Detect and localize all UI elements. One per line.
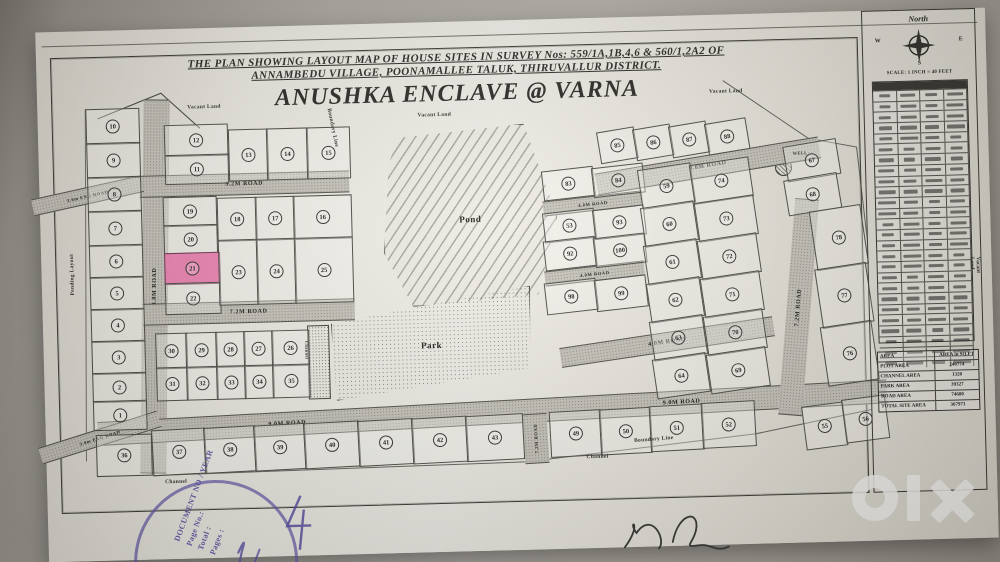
plot-number: 12: [189, 133, 203, 147]
schedule-cell: [947, 207, 971, 217]
schedule-cell: [921, 111, 945, 121]
plot-number: 9: [106, 153, 120, 167]
plot-cell: 39: [253, 423, 307, 472]
plot-number: 33: [224, 375, 238, 389]
schedule-cell: [901, 272, 925, 282]
plot-number: 22: [186, 291, 200, 305]
plot-number: 32: [195, 376, 209, 390]
plot-number: 98: [564, 289, 579, 304]
map-label: WELL: [793, 150, 808, 155]
schedule-cell: [926, 335, 950, 345]
schedule-cell: [877, 230, 901, 240]
schedule-cell: [874, 123, 898, 133]
plot-cell: 2: [92, 372, 147, 403]
schedule-cell: [922, 165, 946, 175]
schedule-cell: [875, 166, 899, 176]
schedule-cell: [900, 240, 924, 250]
plot-number: 49: [569, 426, 584, 441]
summary-label: PARK AREA: [879, 381, 936, 391]
schedule-cell: [878, 294, 902, 304]
plot-cell: 49: [549, 409, 603, 458]
plot-cell: 83: [541, 166, 596, 202]
schedule-cell: [877, 251, 901, 261]
olx-l-icon: [907, 475, 920, 521]
plot-cell: 7: [88, 210, 143, 247]
schedule-cell: [924, 250, 948, 260]
plot-cell: 78: [809, 204, 869, 271]
plot-number: 16: [315, 210, 329, 224]
schedule-cell: [897, 101, 921, 111]
plot-cell: 32: [186, 366, 219, 401]
schedule-cell: [898, 133, 922, 143]
plot-number: 69: [730, 362, 746, 378]
schedule-cell: [879, 326, 903, 336]
plot-cell: 11: [164, 154, 229, 186]
schedule-cell: [897, 122, 921, 132]
plot-number: 64: [673, 368, 689, 384]
plot-number: 2: [112, 380, 126, 394]
plot-number: 51: [669, 420, 684, 435]
plot-number: 100: [612, 243, 627, 258]
map-label: Channel: [304, 341, 309, 359]
plot-number: 31: [165, 377, 179, 391]
plot-number: 24: [269, 264, 283, 278]
vacant-land-right-label: Vacant Land: [969, 257, 981, 274]
plot-cell: 51: [649, 403, 705, 452]
plot-number: 93: [612, 215, 627, 230]
plot-cell: 10: [85, 108, 140, 145]
schedule-cell: [875, 155, 899, 165]
road-label: 7.2M ROAD: [794, 288, 803, 326]
summary-label: ROAD AREA: [879, 391, 936, 401]
plot-cell: 42: [411, 416, 469, 465]
map-label: Vacant Land: [709, 88, 743, 95]
plot-number: 86: [645, 134, 661, 150]
plot-cell: 40: [303, 420, 361, 469]
plot-number: 41: [379, 435, 394, 450]
legend-column: North W E S SCALE: 1 INCH = 40 FEET AREA…: [861, 8, 988, 493]
summary-value: 248774: [935, 360, 978, 370]
plot-cell: 77: [814, 262, 874, 329]
road-label: 4.0M ROAD: [578, 199, 608, 207]
plot-cell: 19: [163, 196, 218, 227]
schedule-cell: [902, 293, 926, 303]
plot-cell: 17: [255, 196, 296, 241]
plot-cell: 98: [544, 278, 599, 316]
plot-number: 5: [110, 286, 124, 300]
summary-label: CHANNEL AREA: [878, 371, 935, 381]
plot-cell: 1: [93, 400, 148, 431]
plot-cell: 30: [155, 333, 188, 370]
plot-cell: 41: [357, 418, 415, 467]
schedule-cell: [944, 111, 968, 121]
schedule-cell: [924, 239, 948, 249]
plot-number: 77: [836, 287, 852, 303]
plot-cell: 100: [593, 232, 648, 268]
park-label: Park: [421, 340, 442, 351]
plot-cell: 88: [704, 117, 751, 155]
schedule-cell: [950, 335, 974, 345]
document-stamp: DOCUMENT NO / YEAR Page No.: Total : Pag…: [132, 476, 365, 562]
schedule-cell: [873, 102, 897, 112]
schedule-cell: [925, 261, 949, 271]
plot-cell: 25: [294, 236, 355, 304]
plot-cell: 23: [218, 239, 260, 306]
plot-number: 60: [661, 216, 677, 232]
schedule-cell: [949, 303, 973, 313]
compass-west-label: W: [875, 38, 881, 44]
schedule-cell: [945, 164, 969, 174]
schedule-cell: [902, 315, 926, 325]
plot-number: 7: [108, 221, 122, 235]
plot-number: 29: [194, 343, 208, 357]
plot-cell: 4: [90, 308, 145, 343]
plot-schedule-table: [872, 79, 975, 343]
summary-label: AREA: [878, 351, 935, 361]
plot-cell: 64: [652, 352, 711, 400]
plot-number: 13: [241, 148, 255, 162]
schedule-cell: [921, 143, 945, 153]
plot-number: 68: [805, 186, 821, 202]
schedule-cell: [874, 134, 898, 144]
schedule-cell: [903, 325, 927, 335]
schedule-cell: [921, 122, 945, 132]
schedule-cell: [946, 196, 970, 206]
plot-cell: 18: [217, 197, 258, 242]
schedule-cell: [873, 91, 897, 101]
schedule-cell: [920, 90, 944, 100]
plot-number: 61: [664, 254, 680, 270]
schedule-cell: [920, 100, 944, 110]
schedule-cell: [901, 261, 925, 271]
plot-number: 30: [164, 344, 178, 358]
plot-cell: 13: [228, 128, 269, 181]
schedule-cell: [924, 229, 948, 239]
plot-number: 53: [562, 218, 577, 233]
schedule-cell: [897, 90, 921, 100]
plot-number: 59: [659, 178, 675, 194]
schedule-cell: [874, 112, 898, 122]
plot-number: 70: [727, 324, 743, 340]
map-label: Vacant Land: [417, 112, 451, 119]
schedule-cell: [950, 324, 974, 334]
map-label: Channel: [586, 454, 608, 461]
plot-number: 42: [433, 433, 448, 448]
highlighted-plot-21: 21: [164, 252, 221, 285]
plot-cell: 92: [543, 236, 598, 272]
plot-cell: 9: [86, 142, 141, 179]
plot-cell: 34: [244, 364, 275, 399]
plot-number: 25: [317, 263, 331, 277]
plot-number: 23: [231, 265, 245, 279]
schedule-cell: [897, 112, 921, 122]
plot-cell: 52: [701, 400, 757, 449]
schedule-cell: [944, 100, 968, 110]
plot-number: 8: [107, 187, 121, 201]
schedule-cell: [925, 282, 949, 292]
plot-number: 40: [325, 438, 340, 453]
schedule-cell: [945, 143, 969, 153]
schedule-cell: [945, 132, 969, 142]
plot-cell: 29: [185, 332, 218, 369]
plot-number: 99: [614, 286, 629, 301]
pond-area: Pond: [381, 123, 560, 307]
schedule-cell: [899, 187, 923, 197]
schedule-cell: [945, 153, 969, 163]
plot-cell: 16: [293, 194, 353, 240]
plot-number: 52: [721, 417, 736, 432]
photo-background: THE PLAN SHOWING LAYOUT MAP OF HOUSE SIT…: [0, 0, 1000, 562]
area-summary-table: AREAAREA in SQ.FTPLOT AREA248774CHANNEL …: [877, 349, 981, 413]
schedule-cell: [925, 293, 949, 303]
plot-number: 43: [488, 430, 503, 445]
plot-number: 20: [184, 232, 198, 246]
plot-number: 74: [713, 173, 729, 189]
schedule-cell: [926, 325, 950, 335]
plot-cell: 24: [256, 238, 298, 305]
plot-cell: 28: [215, 331, 246, 368]
schedule-cell: [947, 228, 971, 238]
signature: [614, 504, 745, 562]
schedule-cell: [898, 154, 922, 164]
plot-cell: 43: [465, 413, 525, 462]
road-label: 4.0M ROAD: [152, 268, 158, 306]
plot-number: 11: [190, 162, 204, 176]
plot-number: 35: [284, 374, 298, 388]
schedule-cell: [876, 187, 900, 197]
road-label: 4.0M ROAD: [580, 269, 610, 277]
plot-cell: 35: [272, 363, 311, 398]
schedule-cell: [901, 251, 925, 261]
plot-cell: 15: [306, 126, 351, 179]
plot-cell: 99: [594, 274, 649, 312]
plot-number: 17: [268, 211, 282, 225]
plot-number: 37: [172, 445, 187, 460]
pond-label: Pond: [459, 213, 481, 224]
schedule-cell: [949, 314, 973, 324]
plot-cell: 50: [599, 407, 653, 456]
plot-number: 78: [831, 230, 847, 246]
plot-number: 19: [183, 204, 197, 218]
schedule-cell: [923, 186, 947, 196]
schedule-cell: [878, 262, 902, 272]
plot-number: 73: [718, 211, 734, 227]
schedule-cell: [899, 176, 923, 186]
schedule-cell: [946, 185, 970, 195]
schedule-cell: [900, 219, 924, 229]
plot-cell: 20: [163, 224, 218, 255]
map-label: Pending Layout: [69, 254, 76, 296]
schedule-cell: [900, 208, 924, 218]
plot-number: 71: [724, 286, 740, 302]
schedule-cell: [879, 305, 903, 315]
plot-number: 36: [117, 448, 131, 462]
plot-cell: 12: [164, 124, 229, 158]
plot-number: 50: [618, 424, 633, 439]
schedule-cell: [944, 121, 968, 131]
plot-number: 1: [113, 408, 127, 422]
plot-cell: 31: [156, 367, 189, 402]
schedule-cell: [947, 217, 971, 227]
road-label: 7.2M ROAD: [533, 424, 540, 454]
map-canvas: Pond Park 4.0M ROAD9.2M ROAD7.2M ROAD9.0…: [35, 11, 873, 512]
summary-value: 1320: [936, 370, 979, 380]
plot-cell: 5: [90, 276, 145, 311]
summary-value: AREA in SQ.FT: [935, 350, 978, 360]
schedule-cell: [947, 239, 971, 249]
plot-number: 27: [251, 342, 265, 356]
summary-label: TOTAL SITE AREA: [879, 401, 936, 411]
plot-number: 85: [609, 137, 625, 153]
summary-value: 367971: [936, 400, 979, 410]
schedule-cell: [898, 144, 922, 154]
schedule-cell: [876, 198, 900, 208]
compass-south-label: S: [918, 60, 921, 66]
schedule-cell: [923, 197, 947, 207]
schedule-cell: [876, 219, 900, 229]
plot-cell: 22: [165, 282, 222, 315]
plot-cell: 8: [87, 176, 142, 213]
schedule-cell: [925, 271, 949, 281]
plot-number: 4: [111, 318, 125, 332]
schedule-cell: [900, 229, 924, 239]
schedule-cell: [902, 283, 926, 293]
plot-number: 26: [283, 341, 297, 355]
plot-cell: 33: [216, 365, 247, 400]
schedule-cell: [878, 273, 902, 283]
schedule-cell: [949, 281, 973, 291]
schedule-cell: [879, 315, 903, 325]
plot-number: 6: [109, 254, 123, 268]
plot-cell: 3: [91, 340, 146, 375]
plot-number: 62: [667, 292, 683, 308]
schedule-cell: [874, 144, 898, 154]
schedule-cell: [944, 89, 968, 99]
olx-o-icon: [852, 475, 898, 521]
schedule-cell: [899, 165, 923, 175]
schedule-cell: [876, 209, 900, 219]
plot-number: 55: [817, 418, 833, 434]
schedule-cell: [949, 292, 973, 302]
plot-number: 34: [252, 375, 266, 389]
plot-number: 72: [721, 248, 737, 264]
summary-value: 39327: [936, 380, 979, 390]
road-label: 7.2M ROAD: [230, 309, 268, 316]
plot-number: 87: [681, 131, 697, 147]
schedule-cell: [879, 337, 903, 347]
plot-number: 21: [185, 261, 199, 275]
schedule-cell: [877, 241, 901, 251]
plot-number: 63: [670, 330, 686, 346]
olx-watermark: [852, 472, 975, 524]
plot-number: 18: [230, 212, 244, 226]
road-label: 9.2M ROAD: [225, 181, 263, 188]
plot-number: 84: [611, 173, 626, 188]
schedule-cell: [946, 175, 970, 185]
schedule-cell: [926, 303, 950, 313]
schedule-cell: [875, 176, 899, 186]
plot-number: 3: [112, 350, 126, 364]
schedule-cell: [903, 336, 927, 346]
compass-east-label: E: [959, 36, 963, 42]
plot-number: 10: [106, 119, 120, 133]
road: 7.2M ROAD: [523, 413, 550, 464]
schedule-cell: [921, 133, 945, 143]
plot-number: 88: [719, 128, 735, 144]
schedule-cell: [922, 154, 946, 164]
plot-cell: 6: [89, 244, 144, 279]
scale-label: SCALE: 1 INCH = 40 FEET: [864, 69, 976, 77]
schedule-cell: [922, 175, 946, 185]
plot-number: 83: [561, 176, 576, 191]
plot-number: 39: [273, 440, 288, 455]
schedule-cell: [923, 218, 947, 228]
schedule-cell: [899, 197, 923, 207]
schedule-cell: [878, 283, 902, 293]
plot-number: 92: [562, 246, 577, 261]
map-label: Vacant Land: [187, 104, 221, 111]
plot-cell: 36: [96, 434, 153, 477]
plot-number: 14: [280, 147, 294, 161]
olx-x-icon: [929, 478, 975, 524]
plot-cell: 14: [266, 127, 309, 180]
summary-value: 74680: [936, 390, 979, 400]
schedule-cell: [923, 207, 947, 217]
plot-cell: 27: [243, 330, 274, 367]
schedule-cell: [926, 314, 950, 324]
schedule-cell: [902, 304, 926, 314]
summary-label: PLOT AREA: [878, 361, 935, 371]
plot-number: 76: [842, 345, 858, 361]
plot-number: 28: [223, 342, 237, 356]
